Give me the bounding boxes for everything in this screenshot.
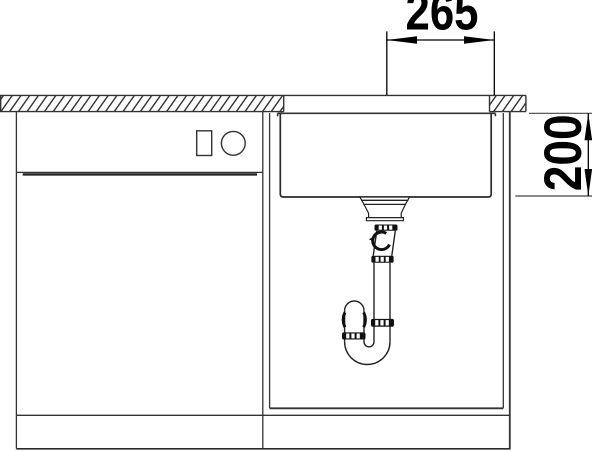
svg-text:265: 265 xyxy=(406,0,479,41)
svg-text:200: 200 xyxy=(534,114,593,191)
